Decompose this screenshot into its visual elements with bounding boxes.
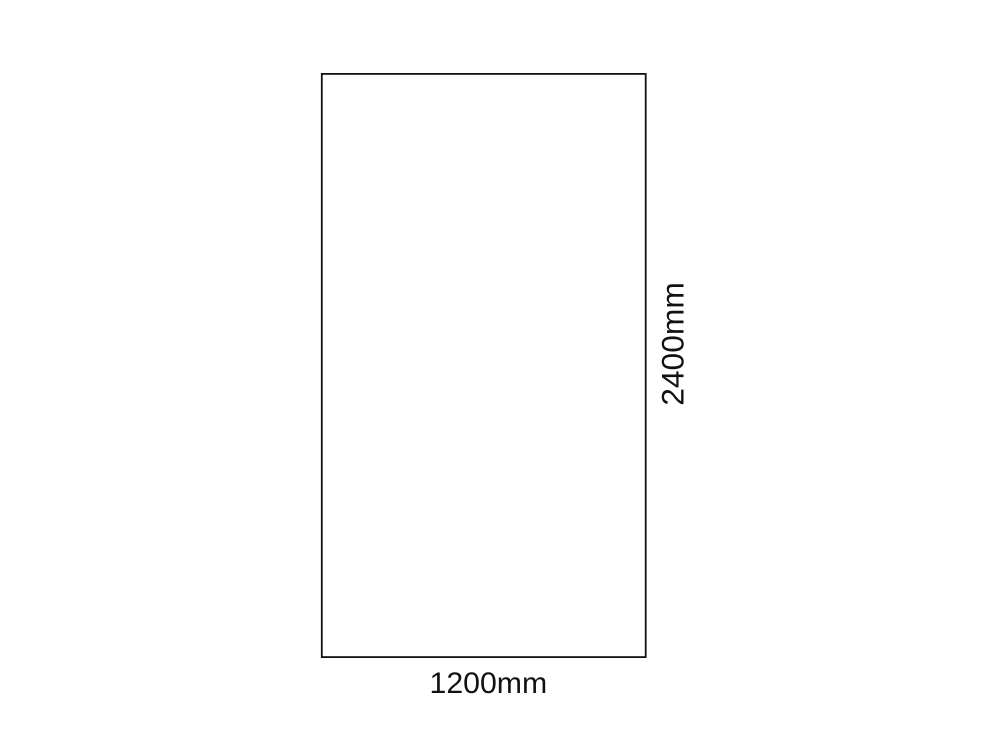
svg-text:2400mm: 2400mm xyxy=(655,282,691,406)
svg-text:1200mm: 1200mm xyxy=(430,667,548,699)
